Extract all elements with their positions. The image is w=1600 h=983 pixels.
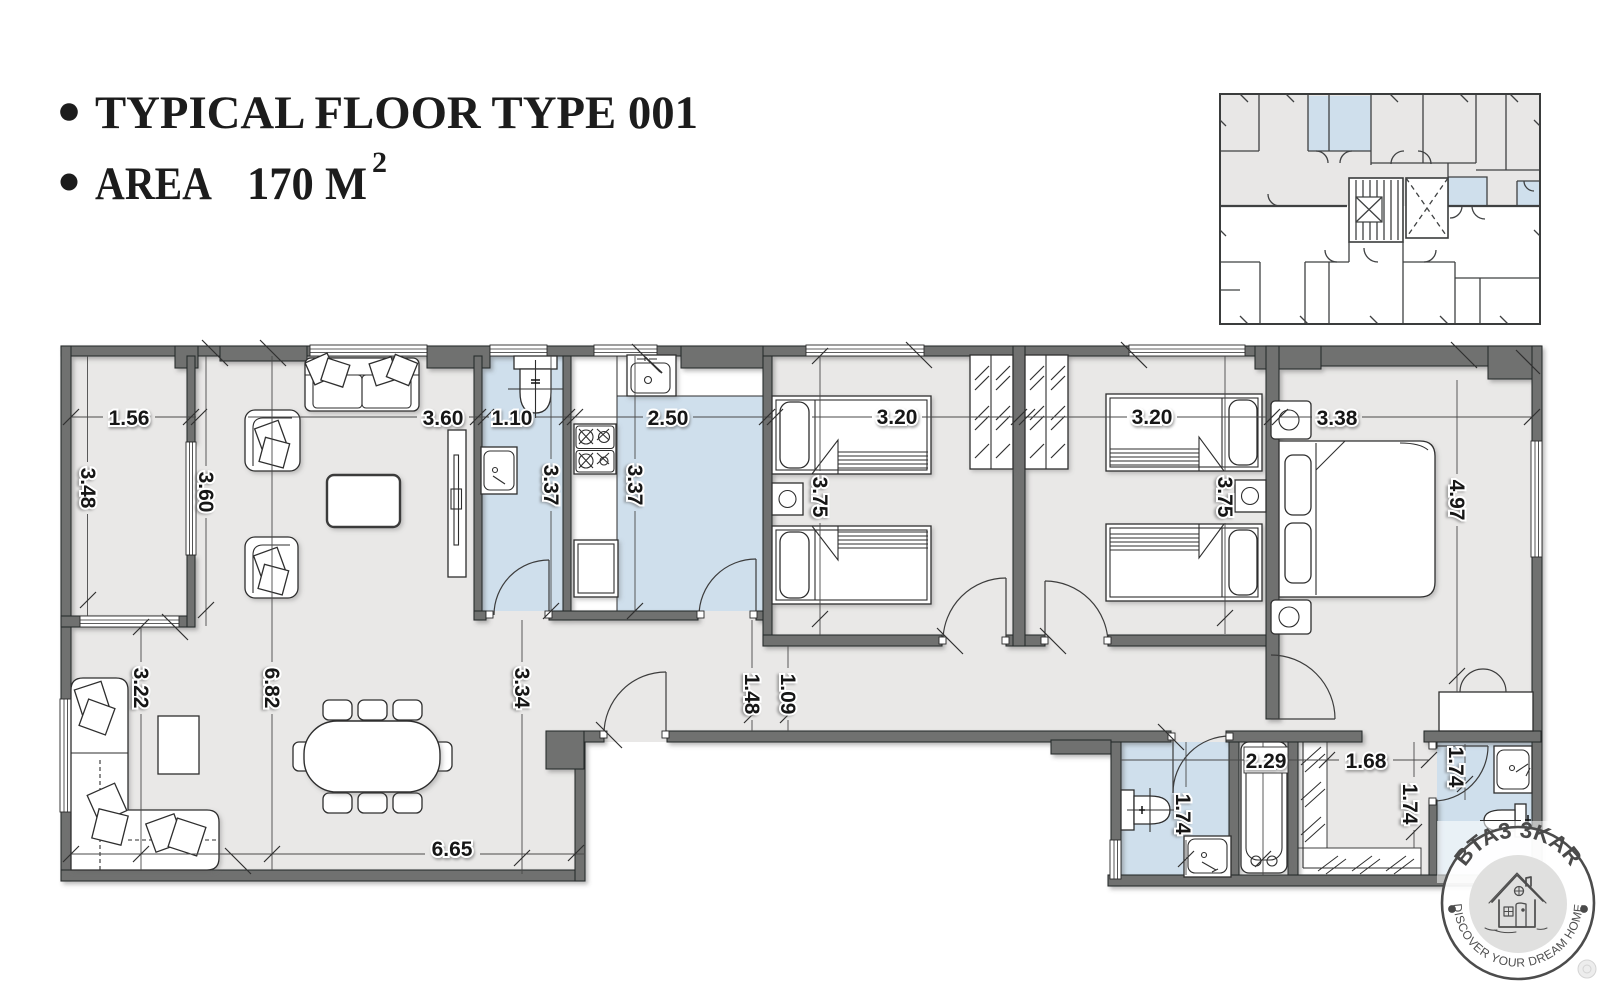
svg-text:3.37: 3.37 [539, 465, 562, 506]
svg-text:1.74: 1.74 [1444, 747, 1467, 788]
svg-text:1.09: 1.09 [776, 674, 799, 715]
svg-text:3.20: 3.20 [1132, 406, 1173, 429]
svg-text:3.22: 3.22 [129, 668, 152, 709]
svg-text:2: 2 [372, 146, 387, 179]
svg-text:1.48: 1.48 [740, 674, 763, 715]
svg-text:1.74: 1.74 [1398, 784, 1421, 825]
svg-text:1.74: 1.74 [1171, 794, 1194, 835]
svg-text:2.50: 2.50 [648, 407, 689, 430]
svg-text:AREA: AREA [95, 158, 212, 210]
svg-text:6.82: 6.82 [260, 668, 283, 709]
svg-text:3.75: 3.75 [1213, 477, 1236, 518]
svg-text:3.38: 3.38 [1317, 407, 1358, 430]
svg-text:3.37: 3.37 [623, 465, 646, 506]
svg-text:2.29: 2.29 [1246, 750, 1287, 773]
svg-text:6.65: 6.65 [432, 838, 473, 861]
svg-text:3.34: 3.34 [510, 668, 533, 709]
svg-text:3.60: 3.60 [194, 472, 217, 513]
svg-text:1.56: 1.56 [109, 407, 150, 430]
svg-text:3.75: 3.75 [808, 477, 831, 518]
svg-text:3.48: 3.48 [76, 468, 99, 509]
svg-text:TYPICAL FLOOR TYPE 001: TYPICAL FLOOR TYPE 001 [95, 87, 698, 139]
svg-text:4.97: 4.97 [1445, 480, 1468, 521]
svg-text:1.68: 1.68 [1346, 750, 1387, 773]
svg-text:3.20: 3.20 [877, 406, 918, 429]
svg-text:1.10: 1.10 [492, 407, 533, 430]
svg-text:3.60: 3.60 [423, 407, 464, 430]
svg-text:170 M: 170 M [247, 158, 367, 210]
